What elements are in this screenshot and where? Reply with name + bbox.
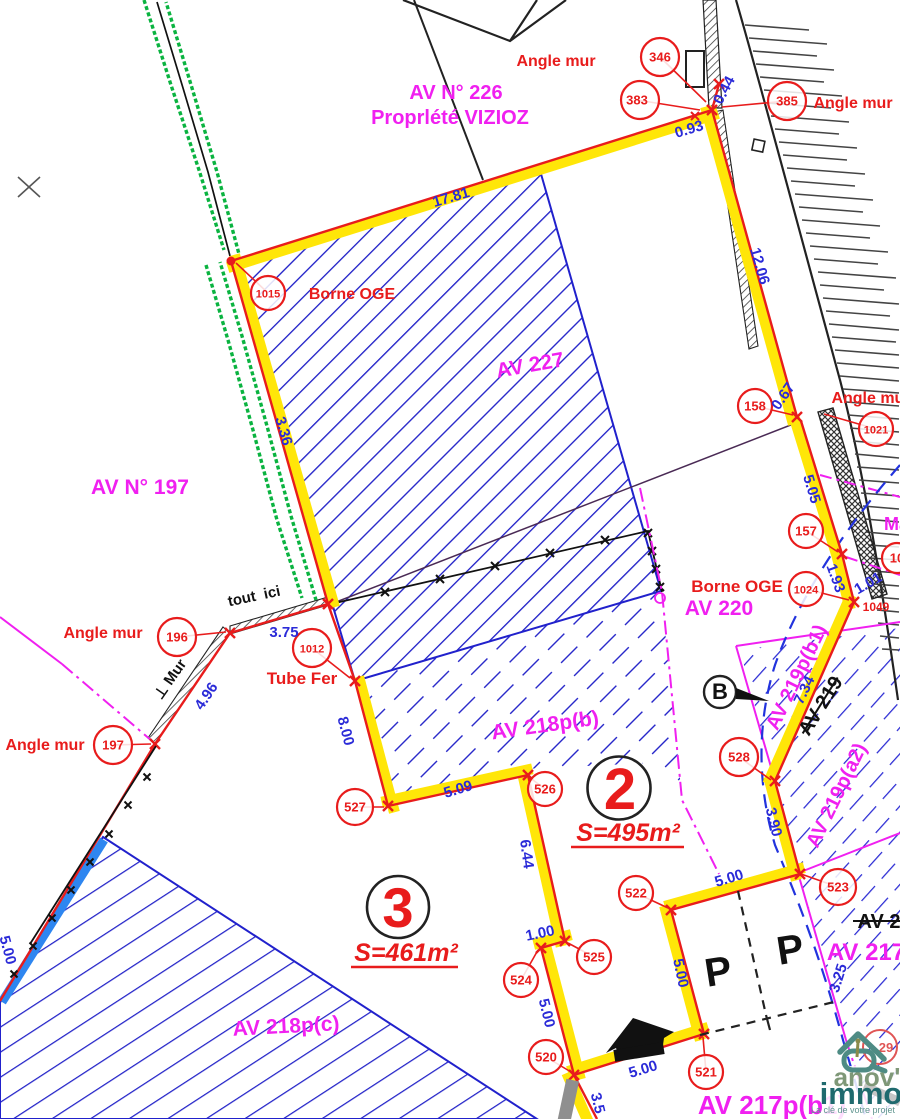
svg-text:383: 383 — [626, 93, 648, 108]
svg-text:346: 346 — [649, 50, 671, 65]
svg-text:Angle mur: Angle mur — [813, 95, 892, 112]
svg-text:Ma: Ma — [884, 514, 900, 534]
svg-text:158: 158 — [744, 399, 766, 414]
svg-text:1049: 1049 — [863, 600, 890, 614]
svg-text:157: 157 — [795, 524, 817, 539]
svg-text:523: 523 — [827, 880, 849, 895]
svg-text:1015: 1015 — [256, 289, 280, 301]
svg-text:1021: 1021 — [864, 425, 888, 437]
svg-text:AV N° 226: AV N° 226 — [409, 82, 502, 104]
svg-text:525: 525 — [583, 950, 605, 965]
svg-text:AV 220: AV 220 — [685, 597, 754, 620]
svg-text:Angle mur: Angle mur — [5, 737, 84, 754]
svg-text:1012: 1012 — [300, 644, 324, 656]
svg-text:Angle mur: Angle mur — [516, 53, 595, 70]
svg-text:196: 196 — [166, 630, 188, 645]
svg-text:AV N° 197: AV N° 197 — [91, 476, 189, 499]
svg-text:10: 10 — [890, 551, 900, 566]
svg-text:520: 520 — [535, 1050, 557, 1065]
svg-text:La clé de votre projet: La clé de votre projet — [811, 1105, 896, 1115]
svg-text:524: 524 — [510, 973, 532, 988]
svg-text:528: 528 — [728, 750, 750, 765]
svg-text:522: 522 — [625, 886, 647, 901]
svg-text:3: 3 — [382, 876, 413, 939]
svg-text:2: 2 — [604, 757, 636, 822]
svg-text:Borne OGE: Borne OGE — [309, 286, 396, 303]
svg-text:527: 527 — [344, 800, 366, 815]
svg-text:Angle mur: Angle mur — [831, 390, 900, 407]
svg-text:1024: 1024 — [794, 585, 819, 597]
svg-text:S=495m²: S=495m² — [576, 819, 680, 847]
svg-text:Borne OGE: Borne OGE — [691, 577, 783, 596]
svg-text:Proprlété VIZIOZ: Proprlété VIZIOZ — [371, 107, 529, 129]
svg-text:AV 217: AV 217 — [827, 939, 900, 966]
svg-text:S=461m²: S=461m² — [354, 939, 458, 967]
svg-text:521: 521 — [695, 1065, 717, 1080]
svg-text:B: B — [712, 679, 728, 704]
svg-text:Tube Fer: Tube Fer — [267, 669, 338, 688]
svg-text:385: 385 — [776, 94, 798, 109]
svg-text:Angle mur: Angle mur — [63, 625, 142, 642]
svg-text:3.75: 3.75 — [269, 624, 298, 641]
svg-text:526: 526 — [534, 782, 556, 797]
svg-text:197: 197 — [102, 738, 124, 753]
